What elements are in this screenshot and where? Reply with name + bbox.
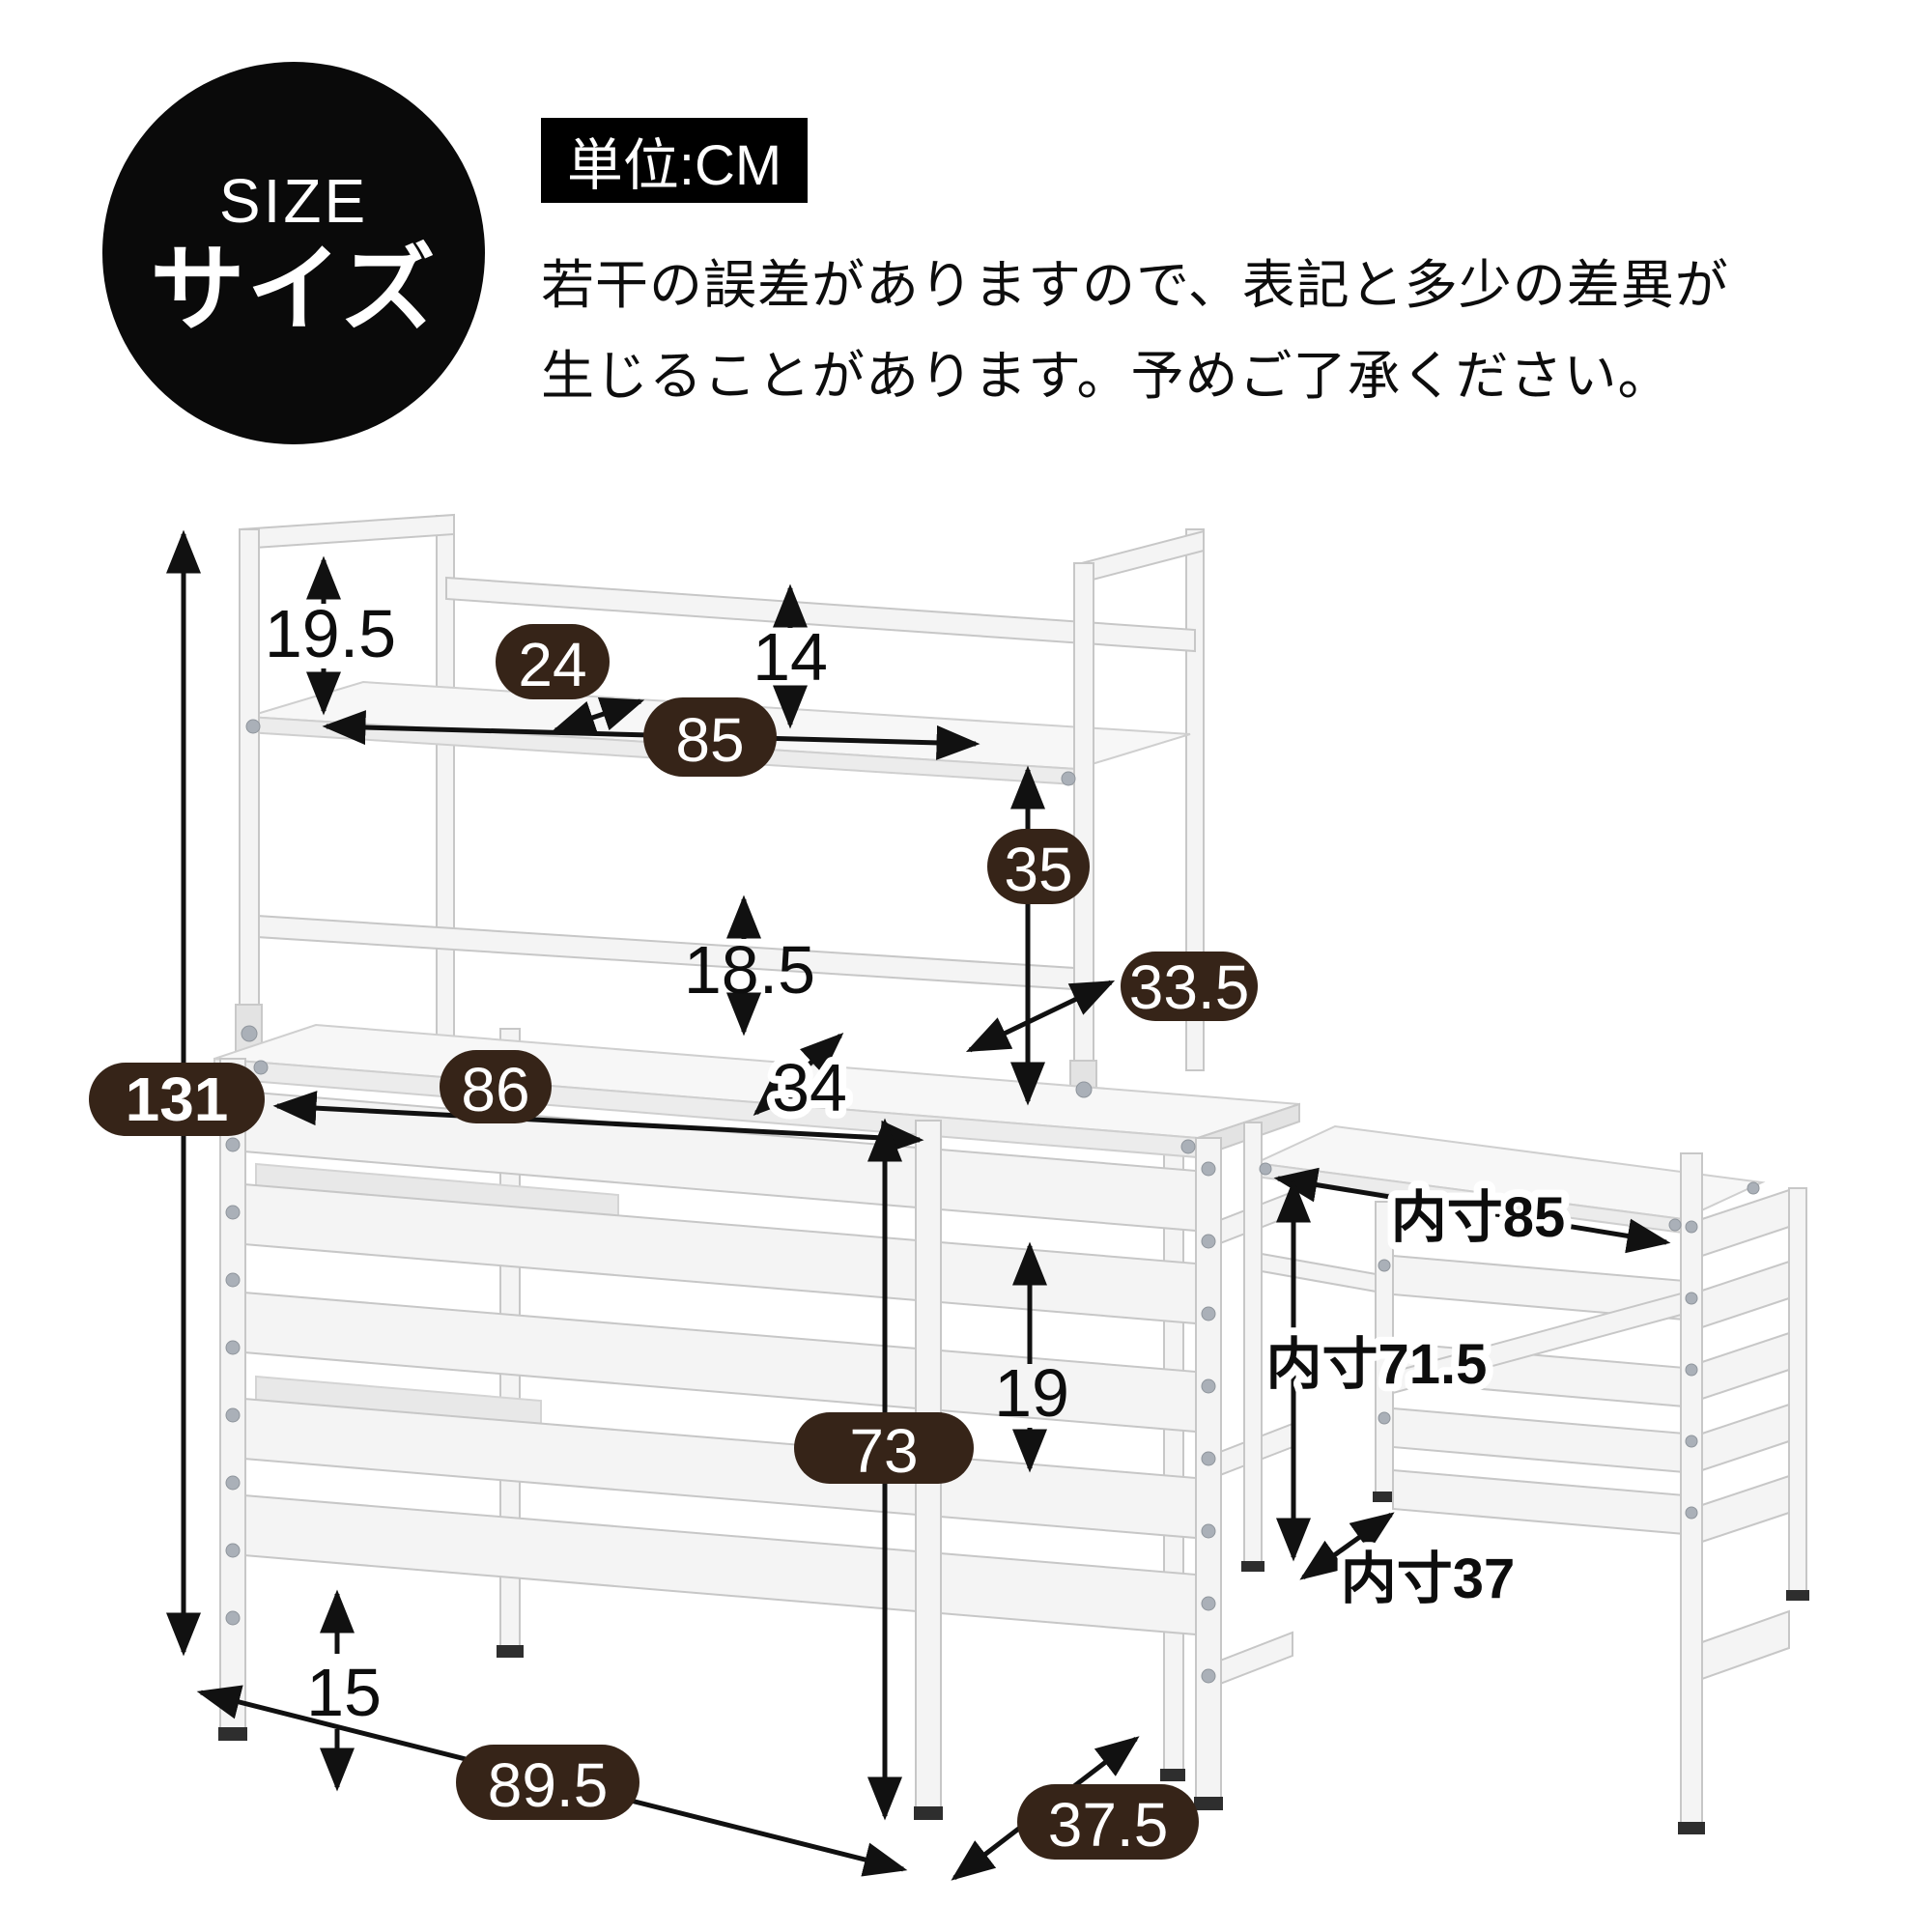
dimension-value-middle-shelf-depth: 33.5 [1129, 952, 1250, 1022]
dimension-value-top-shelf-depth: 24 [518, 630, 586, 699]
leg-foot [1160, 1769, 1185, 1781]
side-view-right-rail [1702, 1476, 1789, 1542]
side-view-slat [1393, 1408, 1685, 1472]
inner-dimension-height: 内寸71.5 [1266, 1333, 1488, 1396]
side-view-back-right-post [1789, 1188, 1806, 1592]
leg-foot [218, 1727, 247, 1741]
dimension-value-top-clearance: 14 [753, 619, 828, 695]
badge-desktop-width: 86 [440, 1050, 552, 1124]
side-view-right-rail [1702, 1262, 1789, 1327]
badge-desktop-height: 73 [794, 1412, 974, 1486]
dimension-value-outer-depth: 37.5 [1048, 1790, 1169, 1860]
leg-foot [497, 1645, 524, 1658]
badge-middle-shelf-depth: 33.5 [1121, 952, 1258, 1022]
badge-outer-depth: 37.5 [1017, 1784, 1199, 1860]
side-view-slat [1393, 1470, 1685, 1534]
hutch-mid-rail [257, 916, 1074, 989]
badge-outer-width: 89.5 [456, 1745, 639, 1820]
inner-dimension-depth: 内寸37 [1341, 1548, 1516, 1610]
side-view-right-rail [1702, 1611, 1789, 1679]
side-view-front-left-post [1244, 1122, 1262, 1563]
dimension-value-desktop-height: 73 [849, 1416, 918, 1486]
dimension-value-desktop-depth: 34 [772, 1050, 847, 1125]
size-diagram-page: SIZE サイズ 単位:CM 若干の誤差がありますので、表記と多少の差異が 生じ… [0, 0, 1932, 1932]
hutch-front-left-post [240, 529, 259, 1061]
dimension-value-mid-rail-to-desktop: 18.5 [684, 932, 815, 1008]
badge-total-height: 131 [89, 1063, 265, 1136]
dimension-diagram: 131 24 85 35 33.5 86 [0, 0, 1932, 1932]
dimension-value-hutch-side-height: 19.5 [265, 596, 396, 671]
dimension-value-side-rail-gap: 19 [994, 1355, 1069, 1431]
inner-dimension-labels: 内寸85 内寸71.5 内寸37 [1266, 1186, 1566, 1610]
dimension-value-bottom-clearance: 15 [306, 1655, 382, 1730]
base-front-left-leg [220, 1059, 245, 1729]
leg-foot [1241, 1561, 1264, 1572]
dimension-value-total-height: 131 [126, 1065, 229, 1134]
dimension-value-outer-width: 89.5 [488, 1750, 609, 1820]
leg-foot [914, 1806, 943, 1820]
inner-dimension-width: 内寸85 [1391, 1186, 1566, 1249]
leg-foot [1678, 1822, 1705, 1834]
dimension-value-top-shelf-width: 85 [675, 705, 744, 775]
side-view-front-right-post [1681, 1153, 1702, 1824]
leg-foot [1786, 1590, 1809, 1601]
dimension-value-desktop-width: 86 [461, 1055, 529, 1124]
side-view-right-rail [1702, 1333, 1789, 1399]
hutch-left-top-bar [240, 515, 454, 549]
side-view-left-rail [1262, 1254, 1381, 1293]
badge-top-shelf-depth: 24 [496, 624, 610, 699]
leg-foot [1194, 1797, 1223, 1810]
side-view-right-rail [1702, 1405, 1789, 1470]
dimension-value-shelf-to-desktop: 35 [1004, 835, 1072, 904]
badge-top-shelf-width: 85 [643, 697, 777, 777]
badge-shelf-to-desktop: 35 [987, 829, 1090, 904]
